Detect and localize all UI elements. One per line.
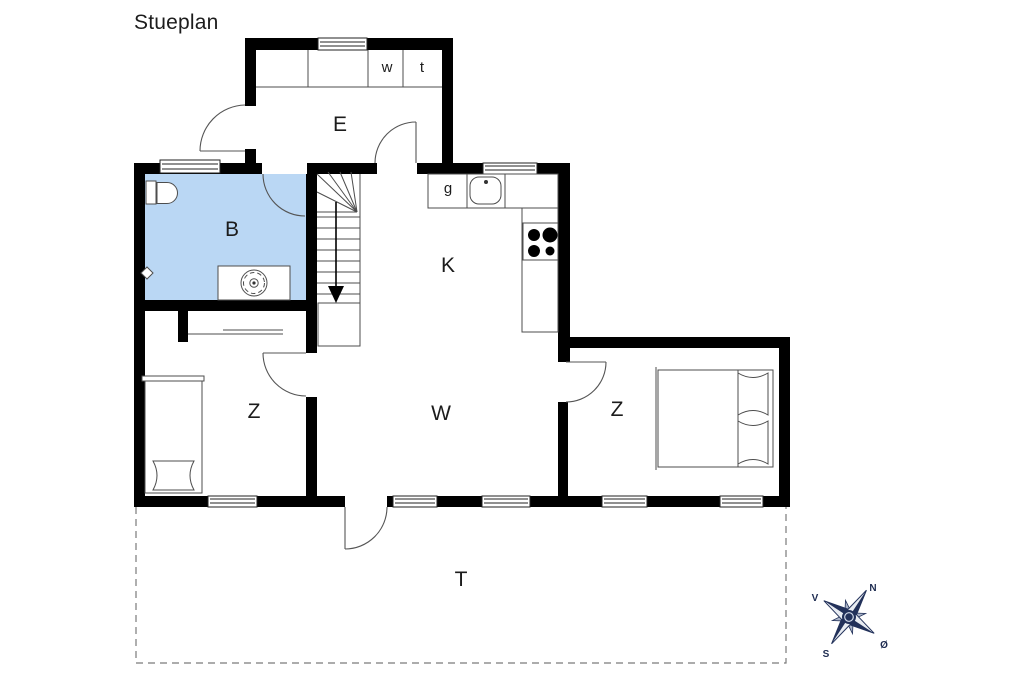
stair-landing <box>318 303 360 346</box>
window-icon <box>208 496 257 507</box>
hall-door-swing <box>375 122 416 163</box>
wall-segment <box>558 163 570 362</box>
wall-segment <box>245 38 256 106</box>
room-label-bedroom-left: Z <box>248 400 261 423</box>
room-label-terrace: T <box>455 568 468 591</box>
stove-icon <box>523 223 558 260</box>
kitchen-counter <box>428 174 558 332</box>
pillow <box>738 373 768 415</box>
wall-segment <box>558 337 790 348</box>
compass-label-east: Ø <box>880 640 888 651</box>
compass-label-west: V <box>812 593 819 604</box>
bedroom-right-door-swing <box>566 362 606 402</box>
window-icon <box>602 496 647 507</box>
wall-segment <box>306 174 317 353</box>
room-label-bathroom: B <box>225 218 239 241</box>
wall-segment <box>134 163 145 507</box>
window-icon <box>160 160 220 173</box>
wall-segment <box>134 300 317 311</box>
window-icon <box>318 38 367 50</box>
toilet-icon <box>146 181 178 204</box>
closet-wall-stub <box>178 311 188 342</box>
compass-rose: N V S Ø <box>806 574 891 660</box>
closet-shelf <box>188 330 283 334</box>
double-bed-icon <box>656 367 773 470</box>
compass-label-north: N <box>869 583 876 594</box>
shower-icon <box>218 266 290 300</box>
room-label-entrance: E <box>333 113 347 136</box>
single-bed-icon <box>142 376 204 493</box>
wall-segment <box>307 163 377 174</box>
wall-segment <box>558 402 568 496</box>
fixture-label-fridge: g <box>444 180 452 197</box>
fixture-label-dryer: t <box>420 59 425 76</box>
entry-closets <box>256 50 442 87</box>
window-icon <box>483 163 537 174</box>
pillow <box>738 421 768 464</box>
wall-segment <box>306 397 317 496</box>
wall-segment <box>779 337 790 507</box>
room-label-kitchen: K <box>441 254 455 277</box>
entry-door-swing <box>200 105 245 151</box>
room-label-living-room: W <box>431 402 451 425</box>
window-icon <box>720 496 763 507</box>
staircase <box>317 172 360 346</box>
compass-label-south: S <box>823 649 830 660</box>
wall-segment <box>442 38 453 174</box>
window-icon <box>393 496 437 507</box>
fixture-label-washer: w <box>381 59 393 76</box>
door-opening <box>345 496 387 507</box>
terrace-door-swing <box>345 507 387 549</box>
floor-plan: E B K W Z Z T w t g N V S Ø <box>0 0 1024 682</box>
sink-icon <box>470 177 501 204</box>
floor-plan-page: Stueplan <box>0 0 1024 682</box>
bedroom-left-door-swing <box>263 353 306 396</box>
room-label-bedroom-right: Z <box>611 398 624 421</box>
window-icon <box>482 496 530 507</box>
